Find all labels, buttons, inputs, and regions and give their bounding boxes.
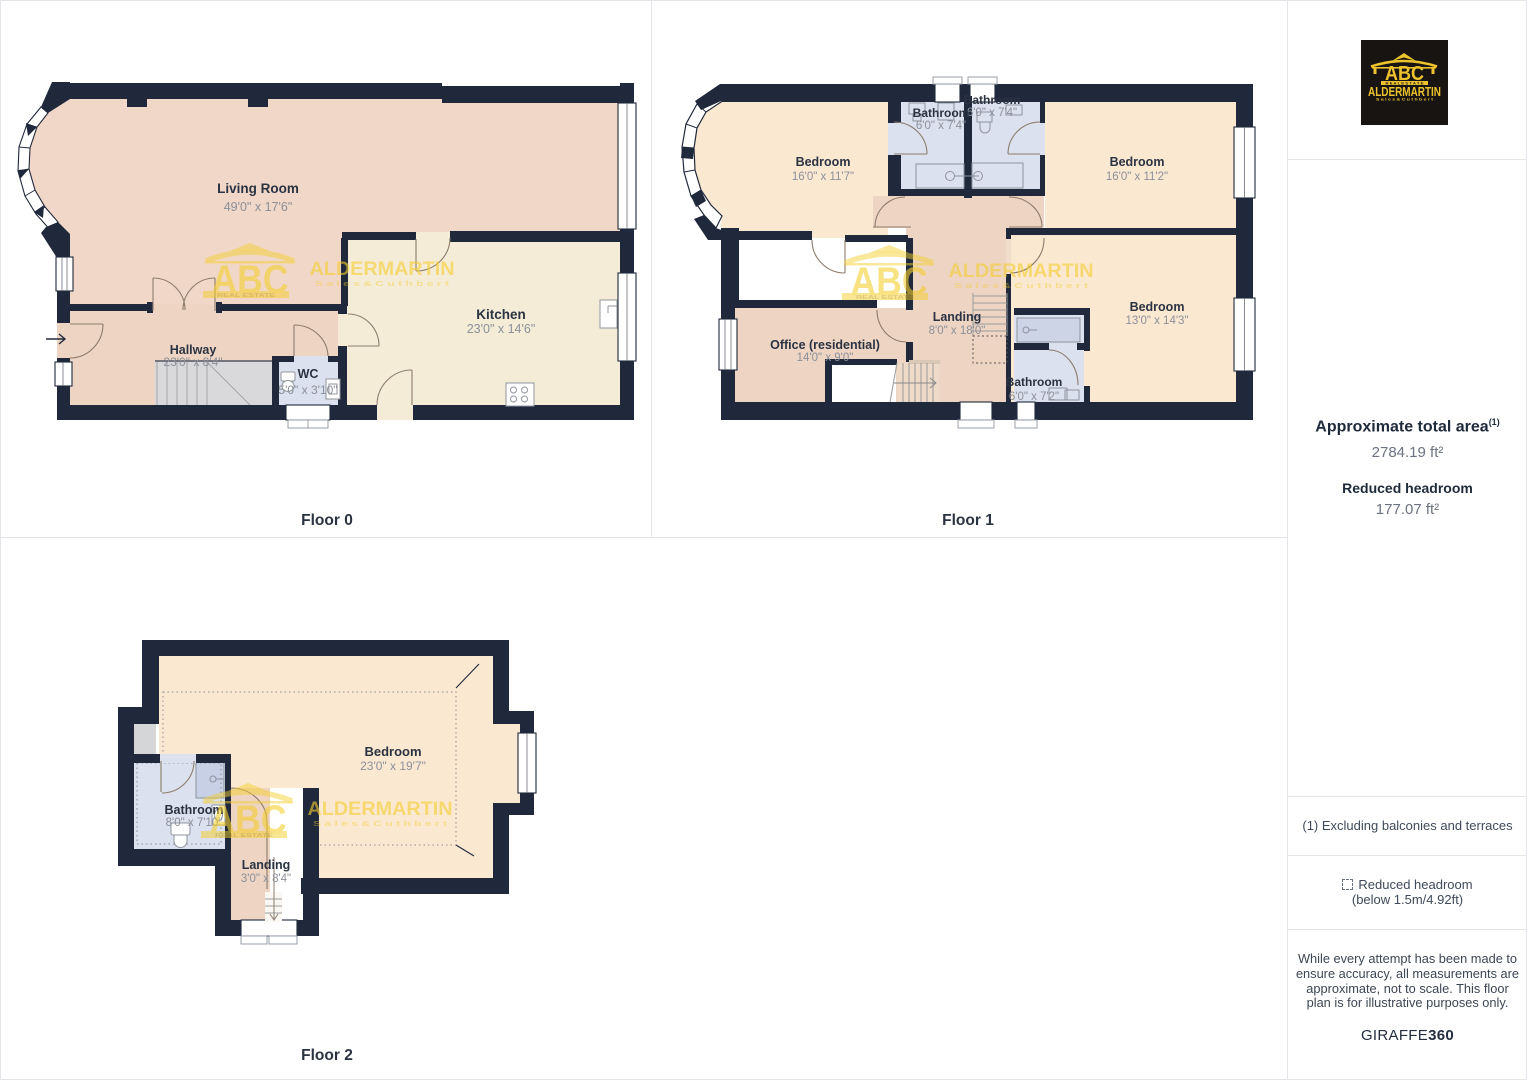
svg-text:Floor 1: Floor 1 bbox=[942, 512, 994, 529]
svg-text:6'0" x 7'4": 6'0" x 7'4" bbox=[916, 120, 966, 132]
svg-text:ALDERMARTIN: ALDERMARTIN bbox=[310, 259, 455, 280]
svg-text:Bathroom: Bathroom bbox=[964, 93, 1021, 107]
svg-text:REAL ESTATE: REAL ESTATE bbox=[856, 295, 915, 301]
svg-text:Kitchen: Kitchen bbox=[476, 307, 526, 322]
svg-text:23'0" x 14'6": 23'0" x 14'6" bbox=[467, 322, 536, 336]
svg-text:Floor 2: Floor 2 bbox=[301, 1047, 353, 1064]
svg-text:S a l e s & C u t h b e r: S a l e s & C u t h b e r t bbox=[954, 281, 1089, 290]
svg-text:6'0" x 7'2": 6'0" x 7'2" bbox=[1009, 391, 1059, 403]
svg-text:Office (residential): Office (residential) bbox=[770, 338, 880, 352]
svg-text:REAL ESTATE: REAL ESTATE bbox=[217, 293, 276, 299]
svg-text:WC: WC bbox=[298, 367, 319, 381]
svg-text:5'0" x 3'10": 5'0" x 3'10" bbox=[278, 383, 337, 397]
svg-text:Bedroom: Bedroom bbox=[364, 744, 421, 759]
svg-text:Bathroom: Bathroom bbox=[1006, 375, 1063, 389]
svg-text:Bedroom: Bedroom bbox=[1130, 300, 1185, 314]
svg-text:14'0" x 9'0": 14'0" x 9'0" bbox=[797, 352, 854, 364]
svg-text:Landing: Landing bbox=[242, 858, 291, 872]
svg-text:13'0" x 14'3": 13'0" x 14'3" bbox=[1125, 315, 1188, 327]
svg-text:S a l e s & C u t h b e r: S a l e s & C u t h b e r t bbox=[1376, 98, 1434, 102]
svg-text:ALDERMARTIN: ALDERMARTIN bbox=[949, 261, 1094, 282]
svg-text:16'0" x 11'7": 16'0" x 11'7" bbox=[792, 171, 854, 183]
svg-text:8'0" x 18'0": 8'0" x 18'0" bbox=[929, 325, 986, 337]
svg-text:Landing: Landing bbox=[933, 310, 982, 324]
svg-text:6'0" x 7'4": 6'0" x 7'4" bbox=[967, 107, 1017, 119]
svg-text:3'0" x 8'4": 3'0" x 8'4" bbox=[241, 873, 291, 885]
svg-text:16'0" x 11'2": 16'0" x 11'2" bbox=[1106, 171, 1168, 183]
svg-text:Bathroom: Bathroom bbox=[913, 106, 970, 120]
svg-text:REAL ESTATE: REAL ESTATE bbox=[215, 833, 274, 839]
svg-text:49'0" x 17'6": 49'0" x 17'6" bbox=[224, 200, 293, 214]
svg-text:Bedroom: Bedroom bbox=[796, 155, 851, 169]
svg-text:S a l e s & C u t h b e r: S a l e s & C u t h b e r t bbox=[315, 279, 450, 288]
svg-text:Bedroom: Bedroom bbox=[1110, 155, 1165, 169]
svg-text:23'0" x 19'7": 23'0" x 19'7" bbox=[360, 759, 426, 773]
svg-text:Living Room: Living Room bbox=[217, 181, 299, 196]
svg-text:Floor 0: Floor 0 bbox=[301, 512, 353, 529]
svg-text:23'0" x 8'4": 23'0" x 8'4" bbox=[163, 355, 222, 369]
svg-text:S a l e s & C u t h b e r: S a l e s & C u t h b e r t bbox=[313, 819, 448, 828]
svg-text:ALDERMARTIN: ALDERMARTIN bbox=[308, 799, 453, 820]
